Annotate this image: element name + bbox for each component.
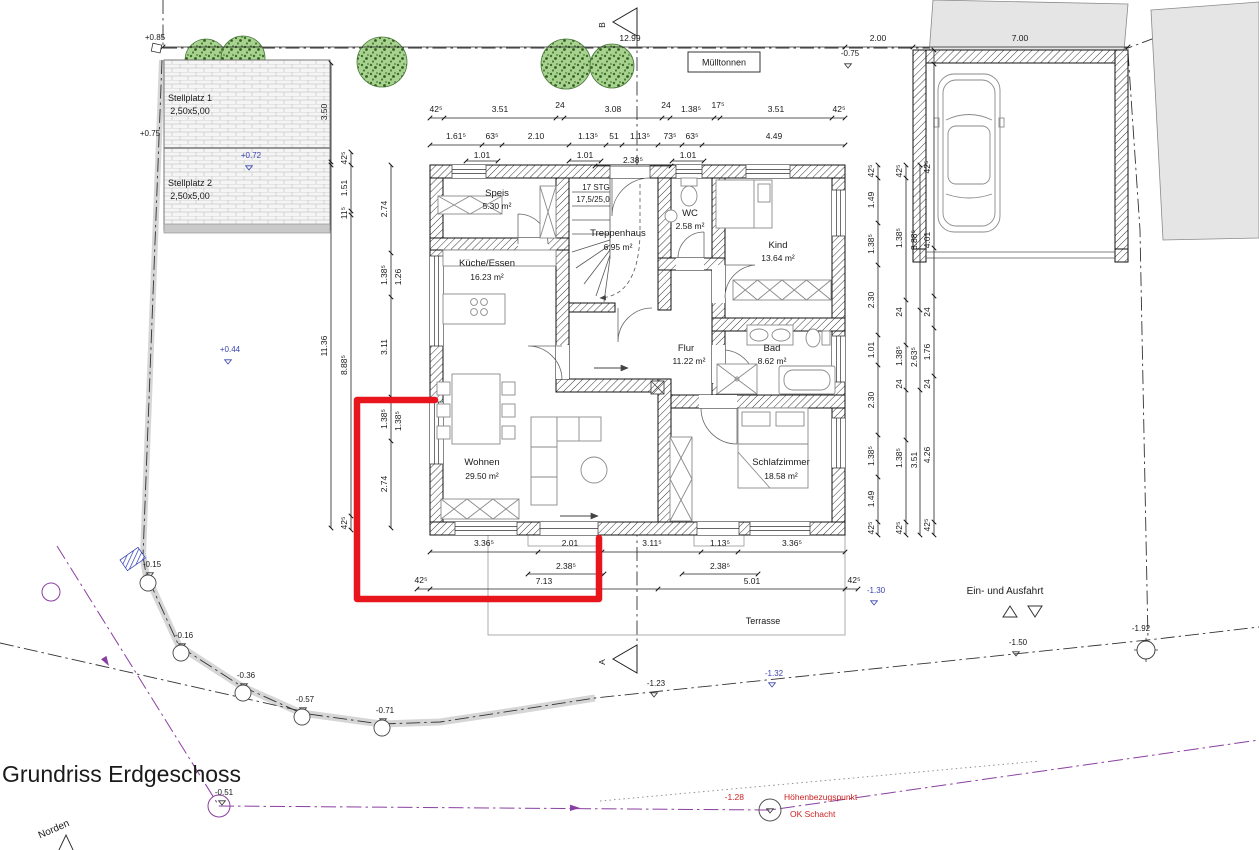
- dim: 73⁵: [664, 131, 677, 141]
- schlafzimmer-wardrobe: [670, 437, 692, 521]
- wall-stair-stub: [569, 303, 615, 312]
- room-speis-area: 5.30 m²: [483, 201, 512, 211]
- muelltonnen-box: Mülltonnen: [688, 52, 760, 72]
- room-wc-area: 2.58 m²: [676, 221, 705, 231]
- dim: 24: [894, 379, 904, 389]
- arrow-up-triangle: [1003, 606, 1017, 617]
- garage-wall-stub-right: [1115, 249, 1128, 262]
- dim: 1.01: [866, 341, 876, 358]
- room-wohnen: Wohnen: [464, 457, 499, 468]
- dim: 42⁵: [415, 575, 428, 585]
- neighbor-building-right: [1151, 2, 1259, 240]
- dim: 7.13: [536, 576, 553, 586]
- car: [934, 74, 1004, 232]
- stellplatz-area: [164, 60, 330, 230]
- dim: 3.11: [379, 339, 389, 355]
- dim: 1.38⁵: [866, 234, 876, 254]
- elev: +0.85: [145, 33, 166, 42]
- boundary-sw-line: [0, 643, 305, 712]
- dim: 3.11⁵: [642, 538, 661, 548]
- elev: -0.16: [175, 631, 194, 640]
- elev: -0.71: [376, 706, 395, 715]
- room-treppenhaus-area: 6.95 m²: [604, 242, 633, 252]
- wall-stair-east: [658, 178, 671, 310]
- wall-west: [430, 178, 443, 522]
- elev: +0.72: [241, 151, 262, 160]
- room-bad-area: 8.62 m²: [758, 356, 787, 366]
- stellplatz1-label: Stellplatz 1: [168, 93, 212, 103]
- dim: 1.38⁵: [894, 346, 904, 366]
- dim: 1.13⁵: [630, 131, 650, 141]
- wall-wohnen-schlaf: [658, 379, 671, 522]
- section-marker-bottom: [613, 645, 637, 673]
- elev: -1.92: [1132, 624, 1151, 633]
- room-kind-area: 13.64 m²: [761, 253, 795, 263]
- dim: 4.49: [766, 131, 783, 141]
- dim: 2.10: [528, 131, 545, 141]
- dim: 11.36: [319, 335, 329, 356]
- dim: 1.49: [866, 191, 876, 208]
- dim: 24: [922, 379, 932, 389]
- stellplatz1-size: 2,50x5,00: [170, 106, 210, 116]
- elev: -1.32: [765, 669, 784, 678]
- sofa: [531, 417, 557, 505]
- height-ref-value: -1.28: [725, 792, 745, 802]
- site-plan-drawing: Stellplatz 1 2,50x5,00 Stellplatz 2 2,50…: [0, 0, 1259, 850]
- room-wc: WC: [682, 208, 698, 219]
- room-kueche: Küche/Essen: [459, 258, 515, 269]
- terrasse-label: Terrasse: [746, 616, 781, 626]
- dim: 42⁵: [922, 519, 932, 532]
- dim: 12.99: [619, 33, 641, 43]
- dim: 1.76: [922, 343, 932, 360]
- dim: 1.01: [474, 150, 491, 160]
- room-wohnen-area: 29.50 m²: [465, 471, 499, 481]
- dim: 8.88⁵: [339, 355, 349, 375]
- dim: 4.01: [922, 231, 932, 248]
- room-flur: Flur: [678, 343, 694, 354]
- section-letter-bottom: A: [597, 659, 607, 665]
- dim: 1.38⁵: [681, 104, 701, 114]
- elev: +0.75: [140, 129, 161, 138]
- elev: -0.51: [215, 788, 234, 797]
- boundary-south-band: [143, 556, 595, 724]
- dim: 42⁵: [339, 152, 349, 165]
- dim: 3.08: [605, 104, 622, 114]
- double-sink: [747, 325, 793, 345]
- elev: -1.23: [647, 679, 666, 688]
- north-arrow: [58, 835, 74, 850]
- tree: [590, 44, 634, 88]
- survey-circle: [173, 645, 189, 661]
- floor-plan-page: Stellplatz 1 2,50x5,00 Stellplatz 2 2,50…: [0, 0, 1259, 850]
- dining-table: [452, 374, 500, 444]
- dim: 1.38⁵: [894, 228, 904, 248]
- neighbor-buildings: [929, 0, 1259, 240]
- stellplatz-curb: [164, 224, 330, 233]
- dim: 2.74: [379, 475, 389, 492]
- dim: 1.38⁵: [379, 265, 389, 285]
- survey-circle: [140, 575, 156, 591]
- elev: -0.36: [237, 671, 256, 680]
- dim: 1.13⁵: [710, 538, 730, 548]
- dim: 4.26: [922, 446, 932, 463]
- dim: 42⁵: [430, 104, 443, 114]
- survey-circle: [235, 685, 251, 701]
- dim: 42⁵: [922, 161, 932, 174]
- dim: 2.01: [562, 538, 579, 548]
- room-treppenhaus: Treppenhaus: [590, 228, 646, 239]
- dim: 7.00: [1012, 33, 1029, 43]
- dim: 42⁵: [866, 165, 876, 178]
- driveway: Ein- und Ausfahrt: [967, 586, 1044, 617]
- dim: 1.61⁵: [446, 131, 466, 141]
- dim: 63⁵: [686, 131, 699, 141]
- elev: +0.44: [220, 345, 241, 354]
- dim: 1.49: [866, 490, 876, 507]
- height-ref-label-1: Höhenbezugspunkt: [784, 792, 858, 802]
- dim: 3.36⁵: [782, 538, 802, 548]
- dim: 24: [894, 307, 904, 317]
- garage-door: [926, 252, 1115, 258]
- room-kueche-area: 16.23 m²: [470, 272, 504, 282]
- room-speis: Speis: [485, 188, 509, 199]
- dim: 3.51: [768, 104, 785, 114]
- section-marker-top: [613, 8, 637, 36]
- dim: 1.26: [393, 268, 403, 285]
- dim: 3.88⁵: [909, 230, 919, 250]
- garage: [913, 50, 1128, 262]
- dim: 1.38⁵: [894, 448, 904, 468]
- wc-tank: [681, 178, 697, 186]
- dim: 1.38⁵: [866, 446, 876, 466]
- elev: -0.15: [143, 560, 162, 569]
- stair-steps: 17 STG: [582, 183, 610, 192]
- room-bad: Bad: [764, 343, 781, 354]
- dim: 1.13⁵: [578, 131, 598, 141]
- dim: 42⁵: [894, 165, 904, 178]
- purple-arrow-2: [570, 805, 580, 812]
- dim: 2.30: [866, 291, 876, 308]
- dim: 2.38⁵: [623, 155, 643, 165]
- arrow-down-triangle: [1028, 606, 1042, 617]
- dim: 1.38⁵: [379, 409, 389, 429]
- survey-circle: [294, 709, 310, 725]
- dim: 24: [661, 100, 671, 110]
- dim: 11⁵: [339, 207, 349, 219]
- dim: 5.01: [744, 576, 761, 586]
- wall-schlaf-north: [671, 395, 845, 408]
- dim: 1.51: [339, 179, 349, 196]
- dim: 2.38⁵: [710, 561, 730, 571]
- dim: 2.74: [379, 200, 389, 217]
- dim: 2.30: [866, 391, 876, 408]
- dim: 2.00: [870, 33, 887, 43]
- dim: 63⁵: [486, 131, 499, 141]
- tree: [357, 37, 407, 87]
- muelltonnen-label: Mülltonnen: [702, 58, 746, 68]
- dim: 3.51: [909, 451, 919, 468]
- room-kind: Kind: [768, 240, 787, 251]
- dim: 51: [609, 131, 619, 141]
- dim: 3.51: [492, 104, 509, 114]
- survey-circle: [1137, 641, 1155, 659]
- stellplatz2-label: Stellplatz 2: [168, 178, 212, 188]
- survey-circle-purple: [42, 583, 60, 601]
- room-schlafzimmer-area: 18.58 m²: [764, 471, 798, 481]
- benchmark-square: [151, 43, 161, 53]
- drawing-title: Grundriss Erdgeschoss: [2, 761, 241, 787]
- dim: 3.50: [319, 103, 329, 120]
- titleblock: Grundriss Erdgeschoss Norden: [2, 761, 241, 850]
- garage-wall-right: [1115, 50, 1128, 262]
- chair: [437, 382, 450, 395]
- garage-wall-top: [913, 50, 1128, 63]
- dim: 1.01: [577, 150, 594, 160]
- dim: 2.38⁵: [556, 561, 576, 571]
- room-flur-area: 11.22 m²: [673, 356, 706, 366]
- tree: [541, 39, 591, 89]
- stair-ratio: 17,5/25,0: [576, 195, 610, 204]
- dim: 2.63⁵: [909, 347, 919, 367]
- section-letter-top: B: [597, 22, 607, 28]
- room-schlafzimmer: Schlafzimmer: [752, 457, 810, 468]
- dim: 42⁵: [339, 517, 349, 530]
- wc-toilet: [681, 186, 697, 206]
- survey-circle: [374, 720, 390, 736]
- boundary-east: [1128, 52, 1148, 640]
- height-ref-label-2: OK Schacht: [790, 809, 836, 819]
- dim: 17⁵: [712, 100, 725, 110]
- elev: -0.75: [841, 49, 860, 58]
- elev: -0.57: [296, 695, 315, 704]
- dim: 42⁵: [833, 104, 846, 114]
- driveway-label: Ein- und Ausfahrt: [967, 586, 1044, 597]
- building: Speis 5.30 m² 17 STG 17,5/25,0 Treppenha…: [430, 165, 845, 535]
- dim: 42⁵: [894, 522, 904, 535]
- kind-wardrobe: [733, 280, 831, 300]
- dim: 24: [555, 100, 565, 110]
- stellplatz2-size: 2,50x5,00: [170, 191, 210, 201]
- dim: 24: [922, 307, 932, 317]
- dim: 42⁵: [848, 575, 861, 585]
- dim: 1.01: [680, 150, 697, 160]
- dim: 42⁵: [866, 522, 876, 535]
- elev: -1.30: [867, 586, 886, 595]
- dim: 1.38⁵: [393, 411, 403, 431]
- toilet-bad: [806, 329, 820, 347]
- parking-spaces: Stellplatz 1 2,50x5,00 Stellplatz 2 2,50…: [164, 60, 330, 233]
- dim: 3.36⁵: [474, 538, 494, 548]
- elev: -1.50: [1009, 638, 1028, 647]
